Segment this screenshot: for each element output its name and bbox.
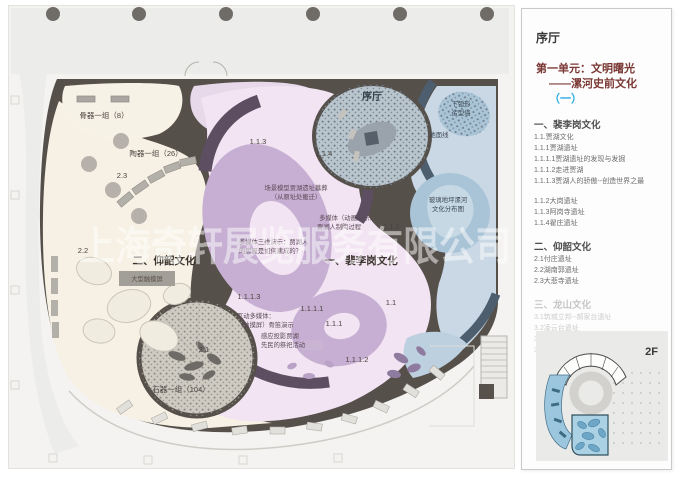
outline-item: 2.3大悲寺遗址 [534, 276, 661, 287]
outline-item: 1.1.1.2走进贾湖 [534, 165, 661, 176]
label-scene-model-1: 场景模型贾湖遗址墓葬 [265, 183, 328, 192]
section-heading: 一、裴李岗文化 [534, 119, 661, 132]
corridor-top [11, 8, 509, 74]
label-lobby: 序厅 [362, 90, 382, 103]
legend-panel: 序厅 第一单元：文明曙光 ——漯河史前文化（一） 一、裴李岗文化 1.1.贾湖文… [521, 8, 672, 470]
label-code-1-1-1-2: 1.1.1.2 [346, 355, 369, 364]
label-code-1-1-4: 1.1.4 [316, 149, 333, 158]
section-heading: 二、仰韶文化 [534, 241, 661, 254]
outline-item: 1.1.1.3贾湖人的骄傲--创造世界之最 [534, 176, 661, 187]
panel-unit-title: 第一单元：文明曙光 [536, 62, 661, 77]
outline-item: 1.1.1.1贾湖遗址的发现与发掘 [534, 154, 661, 165]
label-stone-group: 石器一组（104） [152, 384, 210, 394]
minimap: 2F [536, 331, 668, 461]
outline-item: 2.2湖南郭遗址 [534, 265, 661, 276]
outline-section-2: 二、仰韶文化 2.1付庄遗址 2.2湖南郭遗址 2.3大悲寺遗址 [534, 241, 661, 287]
label-glass-floor-2: 文化分布图 [432, 204, 464, 213]
label-code-1-1: 1.1 [386, 298, 396, 307]
label-arc-wall-1: 下弧形 [451, 99, 471, 108]
label-interactive-2: （触摸屏）骨笛演示 [237, 320, 294, 329]
outline-section-1: 一、裴李岗文化 1.1.贾湖文化 1.1.1贾湖遗址 1.1.1.1贾湖遗址的发… [534, 119, 661, 229]
label-ground-line: 地面线 [429, 130, 449, 139]
outline-item: 1.1.1贾湖遗址 [534, 143, 661, 154]
label-zone-2-3: 2.3 [117, 171, 127, 180]
label-zone-2-1: 2.1 [199, 345, 209, 354]
outline-item: 3.1筑城立邦--郝家台遗址 [534, 312, 661, 323]
outline-item: 1.1.3阿岗寺遗址 [534, 207, 661, 218]
exhibition-plan-page: 骨器一组（8） 陶器一组（26） 2.3 2.2 二、仰韶文化 大型触摸屏 2.… [0, 0, 676, 477]
label-glass-floor-1: 玻璃地坪漯河 [429, 195, 468, 204]
label-code-1-1-1-1: 1.1.1.1 [301, 304, 324, 313]
label-bone-group: 骨器一组（8） [79, 110, 128, 120]
minimap-drawing: 2F [536, 331, 668, 461]
panel-lobby-heading: 序厅 [536, 29, 661, 46]
floor-plan-drawing: 骨器一组（8） 陶器一组（26） 2.3 2.2 二、仰韶文化 大型触摸屏 2.… [9, 6, 512, 466]
watermark-text: 上海奇轩展览服务有限公司 [79, 225, 511, 269]
outline-item: 1.1.4翟庄遗址 [534, 218, 661, 229]
lobby-exhibit [364, 131, 379, 146]
panel-unit-subtitle: ——漯河史前文化（一） [536, 77, 661, 107]
outline-item: 2.1付庄遗址 [534, 254, 661, 265]
outline-item: 1.1.贾湖文化 [534, 132, 661, 143]
outline-item: 1.1.2大岗遗址 [534, 196, 661, 207]
minimap-floor-label: 2F [645, 346, 658, 358]
label-interactive-1: 互动多媒体： [237, 311, 275, 320]
panel-unit-subtitle-text: ——漯河史前文化 [549, 78, 637, 90]
label-code-1-1-1-3: 1.1.1.3 [238, 292, 261, 301]
label-pottery-group: 陶器一组（26） [129, 148, 182, 158]
label-anim-1: 多媒体（动画演示）： [319, 213, 379, 222]
label-code-1-1-3: 1.1.3 [250, 137, 267, 146]
label-arc-wall-2: 造型墙 [451, 108, 471, 117]
floor-plan-sheet: 骨器一组（8） 陶器一组（26） 2.3 2.2 二、仰韶文化 大型触摸屏 2.… [8, 5, 515, 469]
panel-unit-suffix: （一） [549, 93, 582, 105]
label-projection-1: 感应投影贾湖 [261, 331, 299, 340]
section-heading: 三、龙山文化 [534, 299, 661, 312]
label-touchscreen: 大型触摸屏 [131, 274, 162, 283]
label-projection-2: 先民的祭祀活动 [261, 340, 305, 349]
label-scene-model-2: （从原址处搬迁） [271, 192, 321, 201]
label-code-1-1-1: 1.1.1 [326, 319, 343, 328]
